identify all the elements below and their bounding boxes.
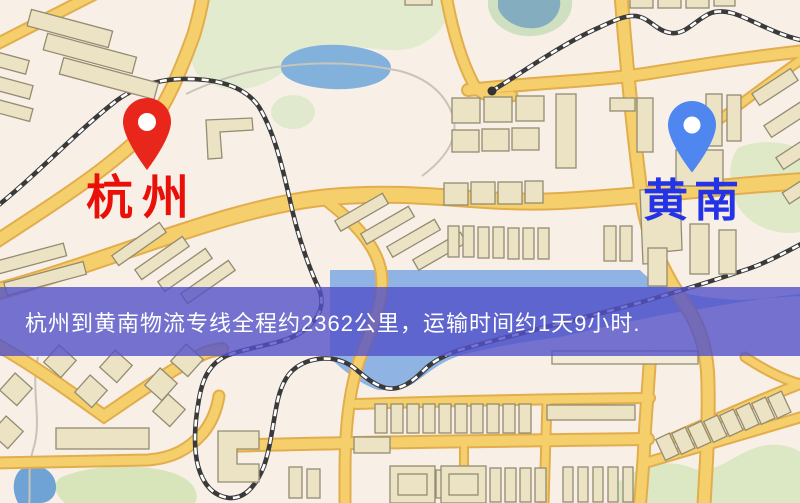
logistics-route-map: 杭州 黄南 杭州到黄南物流专线全程约2362公里，运输时间约1天9小时. (0, 0, 800, 503)
route-info-text: 杭州到黄南物流专线全程约2362公里，运输时间约1天9小时. (25, 306, 641, 338)
destination-label: 黄南 (643, 179, 745, 224)
map-canvas (0, 0, 800, 503)
route-info-banner: 杭州到黄南物流专线全程约2362公里，运输时间约1天9小时. (0, 287, 800, 356)
origin-label: 杭州 (86, 176, 198, 223)
